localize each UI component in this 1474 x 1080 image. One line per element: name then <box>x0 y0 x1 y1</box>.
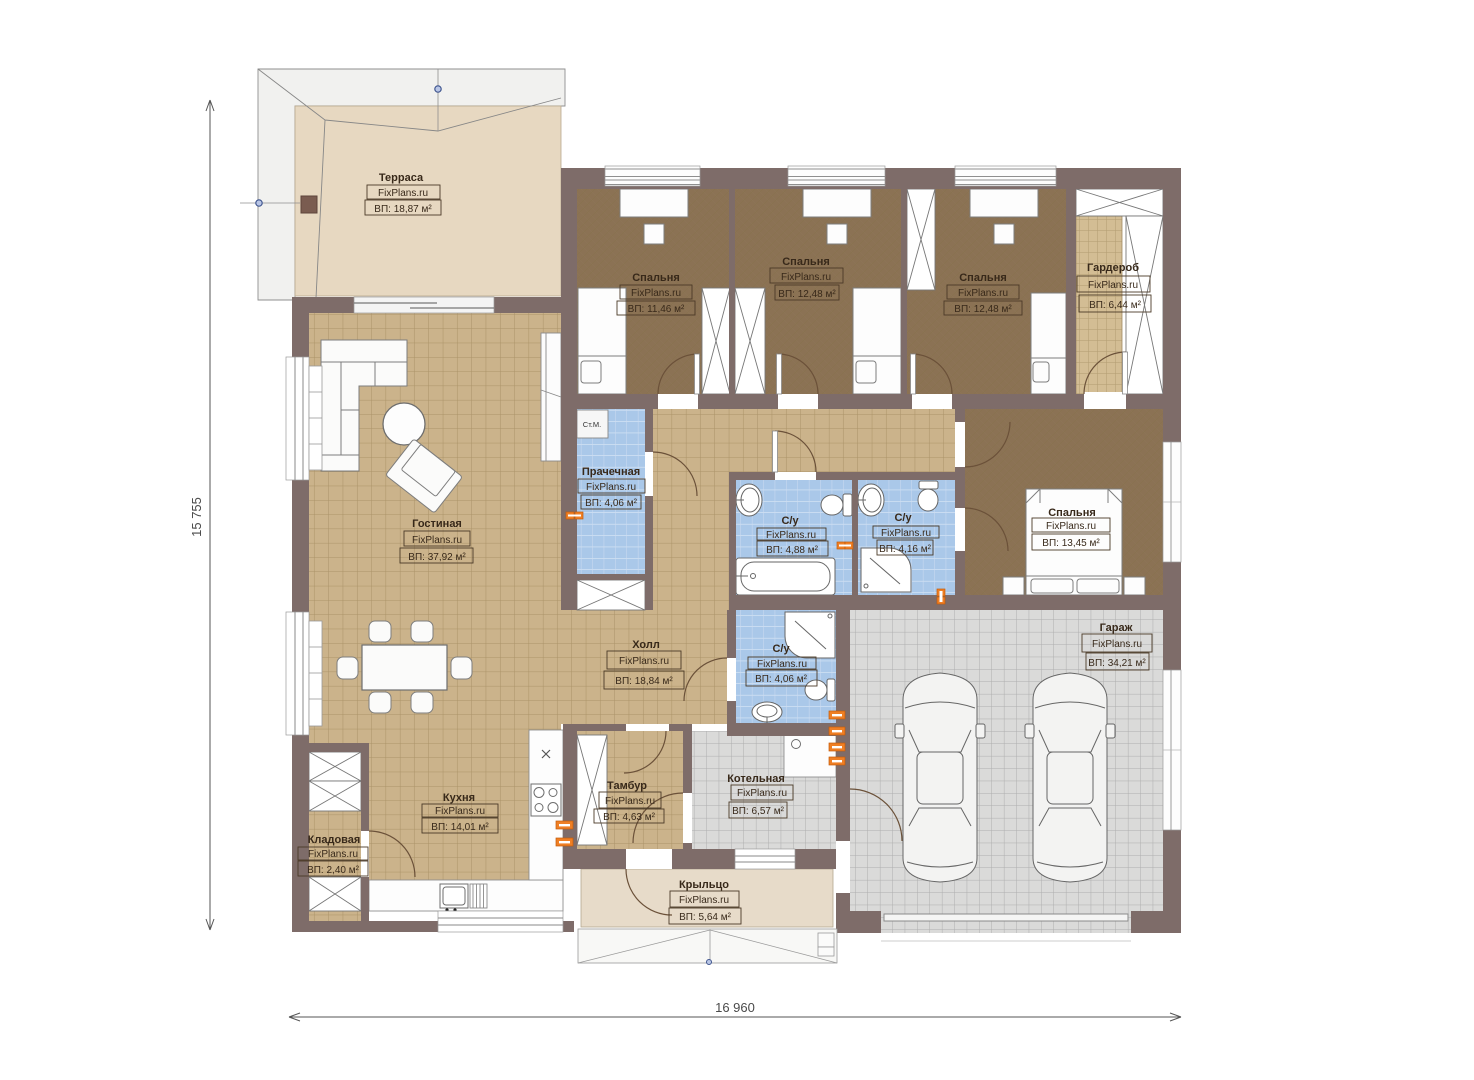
svg-text:ВП: 12,48 м²: ВП: 12,48 м² <box>954 304 1012 315</box>
svg-text:ВП: 11,46 м²: ВП: 11,46 м² <box>628 304 685 315</box>
svg-text:С/у: С/у <box>894 512 912 524</box>
svg-text:ВП: 13,45 м²: ВП: 13,45 м² <box>1042 538 1100 549</box>
svg-text:FixPlans.ru: FixPlans.ru <box>1088 280 1138 291</box>
svg-text:FixPlans.ru: FixPlans.ru <box>757 659 807 670</box>
svg-text:Спальня: Спальня <box>959 272 1007 284</box>
svg-text:FixPlans.ru: FixPlans.ru <box>378 188 428 199</box>
svg-text:Тамбур: Тамбур <box>607 780 647 792</box>
svg-text:ВП: 5,64 м²: ВП: 5,64 м² <box>679 912 732 923</box>
svg-text:16 960: 16 960 <box>715 1000 755 1015</box>
svg-text:Прачечная: Прачечная <box>582 466 640 478</box>
svg-text:FixPlans.ru: FixPlans.ru <box>308 849 358 860</box>
svg-text:Котельная: Котельная <box>727 773 785 785</box>
svg-text:FixPlans.ru: FixPlans.ru <box>412 535 462 546</box>
svg-text:Кладовая: Кладовая <box>308 834 361 846</box>
svg-text:FixPlans.ru: FixPlans.ru <box>781 272 831 283</box>
svg-text:FixPlans.ru: FixPlans.ru <box>605 796 655 807</box>
svg-text:FixPlans.ru: FixPlans.ru <box>586 482 636 493</box>
svg-text:FixPlans.ru: FixPlans.ru <box>435 806 485 817</box>
svg-text:Спальня: Спальня <box>782 256 830 268</box>
svg-text:ВП: 2,40 м²: ВП: 2,40 м² <box>307 865 360 876</box>
svg-text:ВП: 34,21 м²: ВП: 34,21 м² <box>1088 658 1146 669</box>
svg-text:ВП: 4,16 м²: ВП: 4,16 м² <box>879 544 932 555</box>
svg-text:Кухня: Кухня <box>443 792 475 804</box>
svg-text:FixPlans.ru: FixPlans.ru <box>619 656 669 667</box>
svg-text:FixPlans.ru: FixPlans.ru <box>1046 521 1096 532</box>
svg-text:ВП: 4,63 м²: ВП: 4,63 м² <box>603 812 656 823</box>
svg-text:ВП: 37,92 м²: ВП: 37,92 м² <box>408 552 466 563</box>
svg-text:ВП: 18,84 м²: ВП: 18,84 м² <box>615 676 673 687</box>
svg-text:FixPlans.ru: FixPlans.ru <box>679 895 729 906</box>
svg-text:FixPlans.ru: FixPlans.ru <box>1092 639 1142 650</box>
svg-text:Холл: Холл <box>632 639 660 651</box>
svg-text:Терраса: Терраса <box>379 172 424 184</box>
svg-text:ВП: 18,87 м²: ВП: 18,87 м² <box>374 204 432 215</box>
svg-text:ВП: 4,88 м²: ВП: 4,88 м² <box>766 545 819 556</box>
svg-text:С/у: С/у <box>772 643 790 655</box>
svg-text:FixPlans.ru: FixPlans.ru <box>631 288 681 299</box>
svg-text:ВП: 6,44 м²: ВП: 6,44 м² <box>1089 300 1142 311</box>
svg-text:Ст.М.: Ст.М. <box>583 420 601 429</box>
svg-text:15 755: 15 755 <box>189 497 204 537</box>
svg-text:С/у: С/у <box>781 515 799 527</box>
svg-text:ВП: 4,06 м²: ВП: 4,06 м² <box>755 674 808 685</box>
svg-text:Гараж: Гараж <box>1100 622 1133 634</box>
svg-text:Гостиная: Гостиная <box>412 518 462 530</box>
svg-text:FixPlans.ru: FixPlans.ru <box>958 288 1008 299</box>
svg-text:Спальня: Спальня <box>1048 507 1096 519</box>
svg-text:Гардероб: Гардероб <box>1087 262 1139 274</box>
svg-text:FixPlans.ru: FixPlans.ru <box>766 530 816 541</box>
svg-text:FixPlans.ru: FixPlans.ru <box>881 528 931 539</box>
svg-text:Крыльцо: Крыльцо <box>679 879 729 891</box>
svg-text:Спальня: Спальня <box>632 272 680 284</box>
svg-text:FixPlans.ru: FixPlans.ru <box>737 788 787 799</box>
svg-text:ВП: 6,57 м²: ВП: 6,57 м² <box>732 806 785 817</box>
svg-text:ВП: 4,06 м²: ВП: 4,06 м² <box>585 498 638 509</box>
svg-text:ВП: 12,48 м²: ВП: 12,48 м² <box>778 289 836 300</box>
svg-text:ВП: 14,01 м²: ВП: 14,01 м² <box>431 822 489 833</box>
